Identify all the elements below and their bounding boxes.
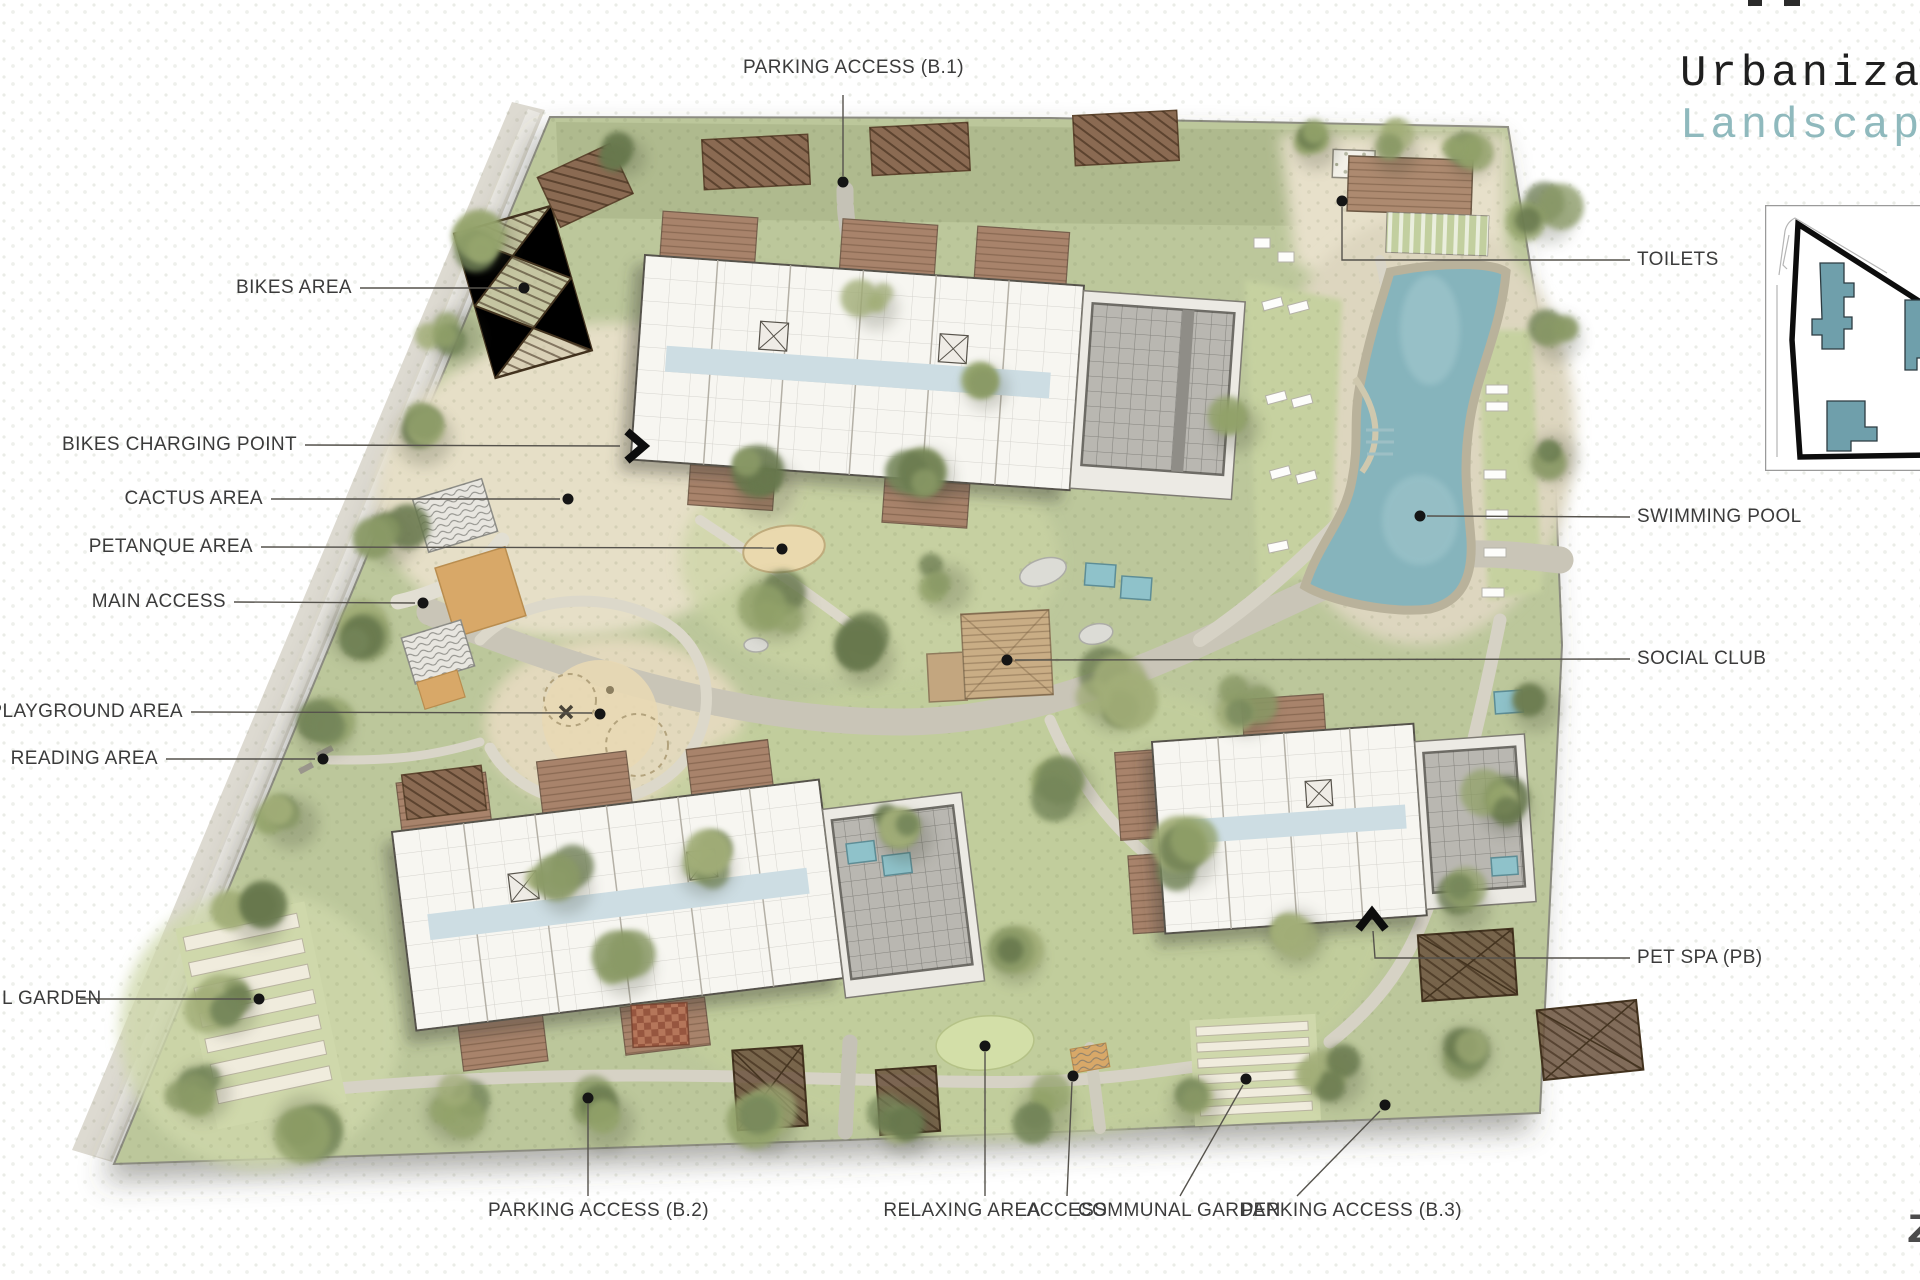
project-title: Urbanizac bbox=[1680, 48, 1920, 100]
callout-parking-access-b1: PARKING ACCESS (B.1) bbox=[743, 57, 943, 79]
callout-parking-access-b2: PARKING ACCESS (B.2) bbox=[488, 1200, 688, 1222]
callout-main-access: MAIN ACCESS bbox=[26, 591, 226, 613]
cut-off-top-marks bbox=[1748, 0, 1822, 18]
callout-petanque-area: PETANQUE AREA bbox=[53, 536, 253, 558]
site-plan-drawing bbox=[0, 0, 1920, 1280]
cut-letter-fragment: L bbox=[2, 988, 12, 1009]
corner-logo-fragment: Z bbox=[1907, 1207, 1920, 1252]
landscape-masterplan-page: { "header": { "title_line1": "Urbanizac"… bbox=[0, 0, 1920, 1280]
callout-toilets: TOILETS bbox=[1637, 249, 1719, 271]
callout-communal-garden-west: L GARDEN bbox=[2, 988, 102, 1010]
callout-playground-area: PLAYGROUND AREA bbox=[0, 701, 183, 723]
project-subtitle: Landscape bbox=[1680, 100, 1920, 152]
callout-parking-access-b3: PARKING ACCESS (B.3) bbox=[1241, 1200, 1441, 1222]
callout-pet-spa: PET SPA (PB) bbox=[1637, 947, 1763, 969]
callout-bikes-area: BIKES AREA bbox=[152, 277, 352, 299]
callout-social-club: SOCIAL CLUB bbox=[1637, 648, 1766, 670]
minimap-key-plan bbox=[1765, 205, 1920, 471]
callout-bikes-charging-point: BIKES CHARGING POINT bbox=[57, 434, 297, 456]
title-block: Urbanizac Landscape bbox=[1680, 48, 1920, 152]
callout-swimming-pool: SWIMMING POOL bbox=[1637, 506, 1802, 528]
callout-cactus-area: CACTUS AREA bbox=[63, 488, 263, 510]
callout-reading-area: READING AREA bbox=[0, 748, 158, 770]
